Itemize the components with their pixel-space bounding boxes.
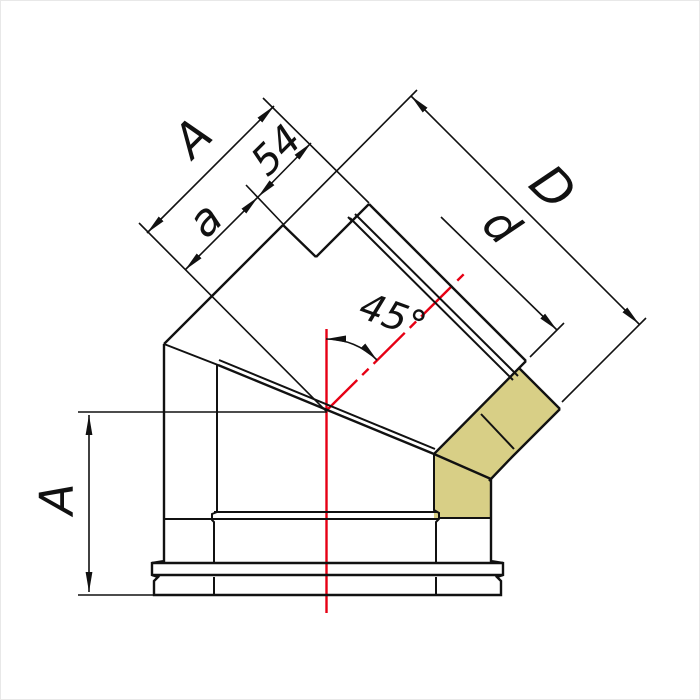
label-D: D xyxy=(518,153,586,221)
elbow-45-diagram: A A a 54 D d 45° xyxy=(1,1,699,699)
label-d: d xyxy=(472,196,531,255)
insulation-branch-band xyxy=(434,368,560,481)
shell-mouth-step xyxy=(283,225,316,257)
label-A-side: A xyxy=(30,483,84,517)
liner-upper-edge xyxy=(316,204,369,257)
branch-shell-upper-edge xyxy=(164,225,283,344)
technical-drawing-page: A A a 54 D d 45° xyxy=(0,0,700,700)
ext-shell-edge-for-D xyxy=(283,90,417,225)
dim-arc-45 xyxy=(326,339,377,360)
label-45deg: 45° xyxy=(354,283,432,347)
ext-cup-corner-for-D xyxy=(562,318,646,402)
ext-center-plane xyxy=(139,223,326,411)
ext-liner-corner-for-d xyxy=(530,323,564,357)
label-a: a xyxy=(178,193,233,248)
seam-left-strip xyxy=(164,344,218,365)
liner-left-wall xyxy=(212,365,217,595)
label-A-branch: A xyxy=(160,107,223,170)
